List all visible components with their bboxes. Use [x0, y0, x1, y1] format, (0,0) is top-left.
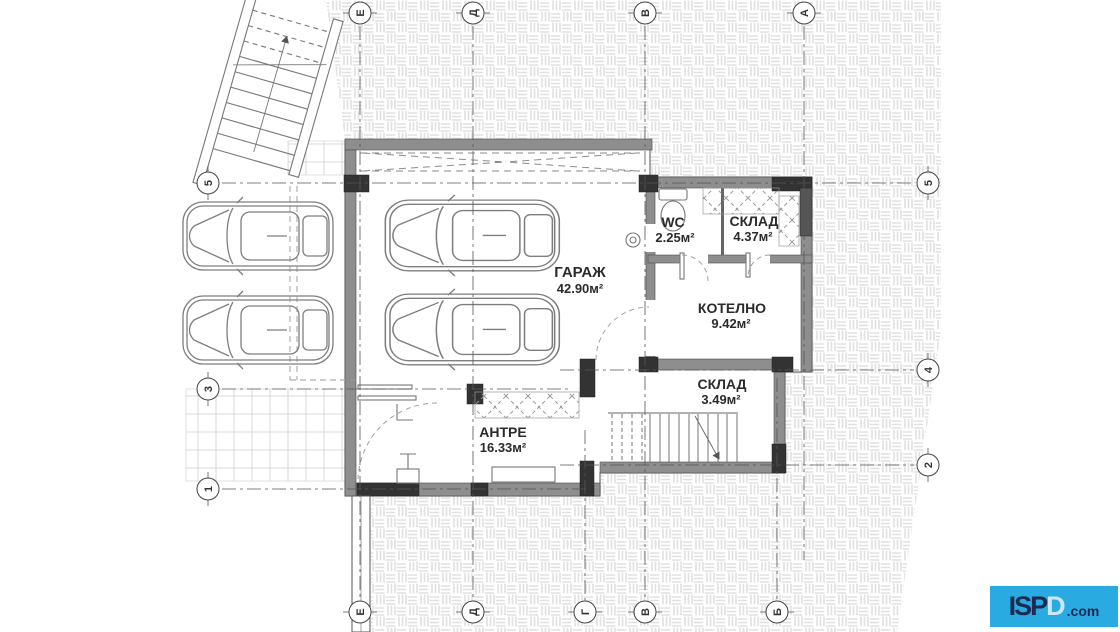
grid-label: Е: [355, 9, 367, 16]
floor-drain-inner: [630, 237, 636, 243]
wall-stub-upper: [358, 385, 412, 389]
room-name: СКЛАД: [697, 376, 746, 392]
doormat: [492, 467, 555, 482]
grid-label: 5: [203, 180, 215, 186]
logo-brand-d: D: [1046, 593, 1064, 620]
entrance-tiles: [186, 389, 354, 481]
grid-label: 1: [203, 486, 215, 492]
logo-watermark[interactable]: ISPD.com: [990, 586, 1118, 627]
grid-label: Б: [772, 608, 784, 616]
room-area: 2.25м²: [655, 230, 695, 245]
room-name: ГАРАЖ: [554, 264, 606, 281]
room-area: 3.49м²: [701, 392, 741, 407]
wall-stub-lower: [358, 396, 416, 400]
grid-label: 5: [923, 180, 935, 186]
logo-suffix: .com: [1067, 604, 1100, 618]
grid-label: 3: [203, 386, 215, 392]
room-area: 4.37м²: [733, 229, 773, 244]
room-label-sklad-1: СКЛАД 4.37м²: [729, 213, 778, 244]
floorplan-drawing: Е Д В А Е Д: [0, 0, 1120, 632]
toilet-tank: [659, 189, 687, 200]
grid-label: А: [799, 9, 811, 17]
room-area: 16.33м²: [480, 440, 527, 455]
door-leaf-wc: [680, 253, 684, 279]
room-name: КОТЕЛНО: [698, 300, 766, 316]
grid-label: В: [640, 608, 652, 616]
meter-box: [397, 469, 419, 483]
room-label-garage: ГАРАЖ 42.90м²: [554, 264, 606, 296]
grid-label: 2: [923, 462, 935, 468]
grid-label: Г: [580, 608, 592, 615]
room-name: WC: [661, 214, 684, 230]
grid-label: Д: [468, 608, 480, 616]
grid-label: 4: [923, 366, 935, 373]
logo-brand-text: ISP: [1009, 593, 1047, 620]
room-area: 9.42м²: [711, 316, 751, 331]
grid-label: Д: [468, 9, 480, 17]
floorplan-canvas: Е Д В А Е Д: [0, 0, 1120, 632]
room-area: 42.90м²: [557, 281, 604, 296]
grid-label: В: [640, 9, 652, 17]
room-name: АНТРЕ: [479, 424, 526, 440]
room-label-sklad-2: СКЛАД 3.49м²: [697, 376, 746, 407]
room-name: СКЛАД: [729, 213, 778, 229]
room-label-antre: АНТРЕ 16.33м²: [479, 424, 527, 455]
grid-label: Е: [355, 608, 367, 615]
